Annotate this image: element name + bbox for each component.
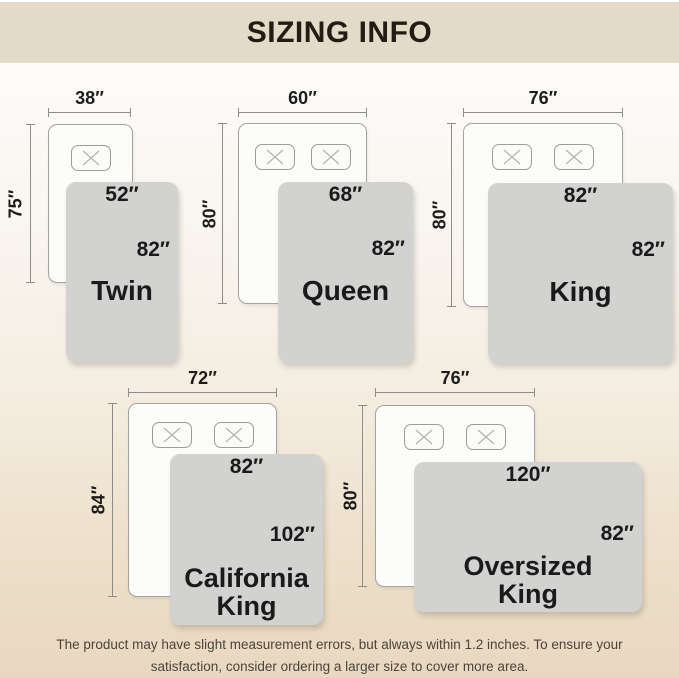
disclaimer-line-2: satisfaction, consider ordering a larger…	[0, 656, 679, 678]
dimension-line	[375, 392, 535, 393]
size-diagram-california-king: 72″ 84″ 82″ 102″ California King	[99, 372, 324, 625]
pillow-icon	[554, 144, 594, 170]
disclaimer-note: The product may have slight measurement …	[0, 634, 679, 677]
bed-length-label: 84″	[89, 486, 110, 515]
bed-length-dimension: 80″	[210, 123, 223, 304]
pillow-icon	[492, 144, 532, 170]
pillow-icon	[214, 422, 254, 448]
blanket-width-label: 120″	[414, 463, 642, 487]
bed-length-label: 80″	[430, 201, 451, 230]
header-banner: SIZING INFO	[0, 2, 679, 63]
blanket-overlay: 82″ 102″ California King	[170, 454, 323, 625]
bed-length-label: 75″	[6, 189, 27, 218]
dimension-line	[112, 403, 113, 597]
blanket-length-label: 82″	[632, 238, 665, 262]
page-title: SIZING INFO	[247, 16, 433, 50]
bed-length-label: 80″	[200, 199, 221, 228]
pillow-icon	[255, 144, 295, 170]
pillow-icon	[311, 144, 351, 170]
sizing-info-infographic: SIZING INFO 38″ 75″ 52″ 82″ Twin 60″ 80	[0, 0, 679, 678]
bed-width-label: 38″	[48, 88, 131, 109]
dimension-line	[238, 112, 367, 113]
pillow-icon	[71, 145, 111, 171]
blanket-length-label: 102″	[270, 523, 315, 547]
bed-width-dimension: 38″	[48, 92, 131, 113]
size-diagram-twin: 38″ 75″ 52″ 82″ Twin	[16, 92, 179, 363]
pillow-icon	[404, 424, 444, 450]
dimension-line	[222, 123, 223, 304]
bed-width-label: 76″	[463, 88, 623, 109]
disclaimer-line-1: The product may have slight measurement …	[0, 634, 679, 656]
pillow-icon	[466, 424, 506, 450]
dimension-line	[48, 112, 131, 113]
dimension-line	[451, 123, 452, 307]
dimension-line	[128, 392, 277, 393]
bed-length-dimension: 80″	[351, 405, 363, 587]
blanket-overlay: 120″ 82″ Oversized King	[414, 462, 642, 612]
bed-length-dimension: 75″	[16, 124, 31, 283]
size-name-label: Queen	[278, 276, 413, 305]
bed-length-dimension: 80″	[440, 123, 452, 307]
pillow-icon	[152, 422, 192, 448]
blanket-overlay: 68″ 82″ Queen	[278, 182, 413, 363]
size-diagram-oversized-king: 76″ 80″ 120″ 82″ Oversized King	[351, 372, 643, 612]
blanket-length-label: 82″	[372, 237, 405, 261]
dimension-line	[362, 405, 363, 587]
blanket-overlay: 52″ 82″ Twin	[66, 182, 178, 362]
bed-width-label: 72″	[128, 368, 277, 389]
blanket-length-label: 82″	[137, 238, 170, 262]
bed-length-label: 80″	[341, 482, 362, 511]
size-name-label: California King	[170, 564, 323, 620]
blanket-width-label: 52″	[66, 183, 178, 207]
bed-width-dimension: 76″	[375, 372, 535, 393]
blanket-length-label: 82″	[601, 522, 634, 546]
blanket-width-label: 68″	[278, 183, 413, 207]
size-name-label: Oversized King	[433, 552, 623, 608]
bed-width-label: 76″	[375, 368, 535, 389]
size-name-label: Twin	[66, 276, 178, 305]
bed-width-dimension: 72″	[128, 372, 277, 393]
size-diagram-queen: 60″ 80″ 68″ 82″ Queen	[210, 92, 414, 363]
blanket-width-label: 82″	[170, 455, 323, 479]
dimension-line	[463, 112, 623, 113]
bed-width-dimension: 76″	[463, 92, 623, 113]
dimension-line	[30, 124, 31, 283]
blanket-overlay: 82″ 82″ King	[488, 183, 673, 363]
bed-width-label: 60″	[238, 88, 367, 109]
blanket-width-label: 82″	[488, 184, 673, 208]
size-name-label: King	[488, 277, 673, 306]
size-diagram-king: 76″ 80″ 82″ 82″ King	[440, 92, 674, 363]
bed-width-dimension: 60″	[238, 92, 367, 113]
bed-length-dimension: 84″	[99, 403, 113, 597]
